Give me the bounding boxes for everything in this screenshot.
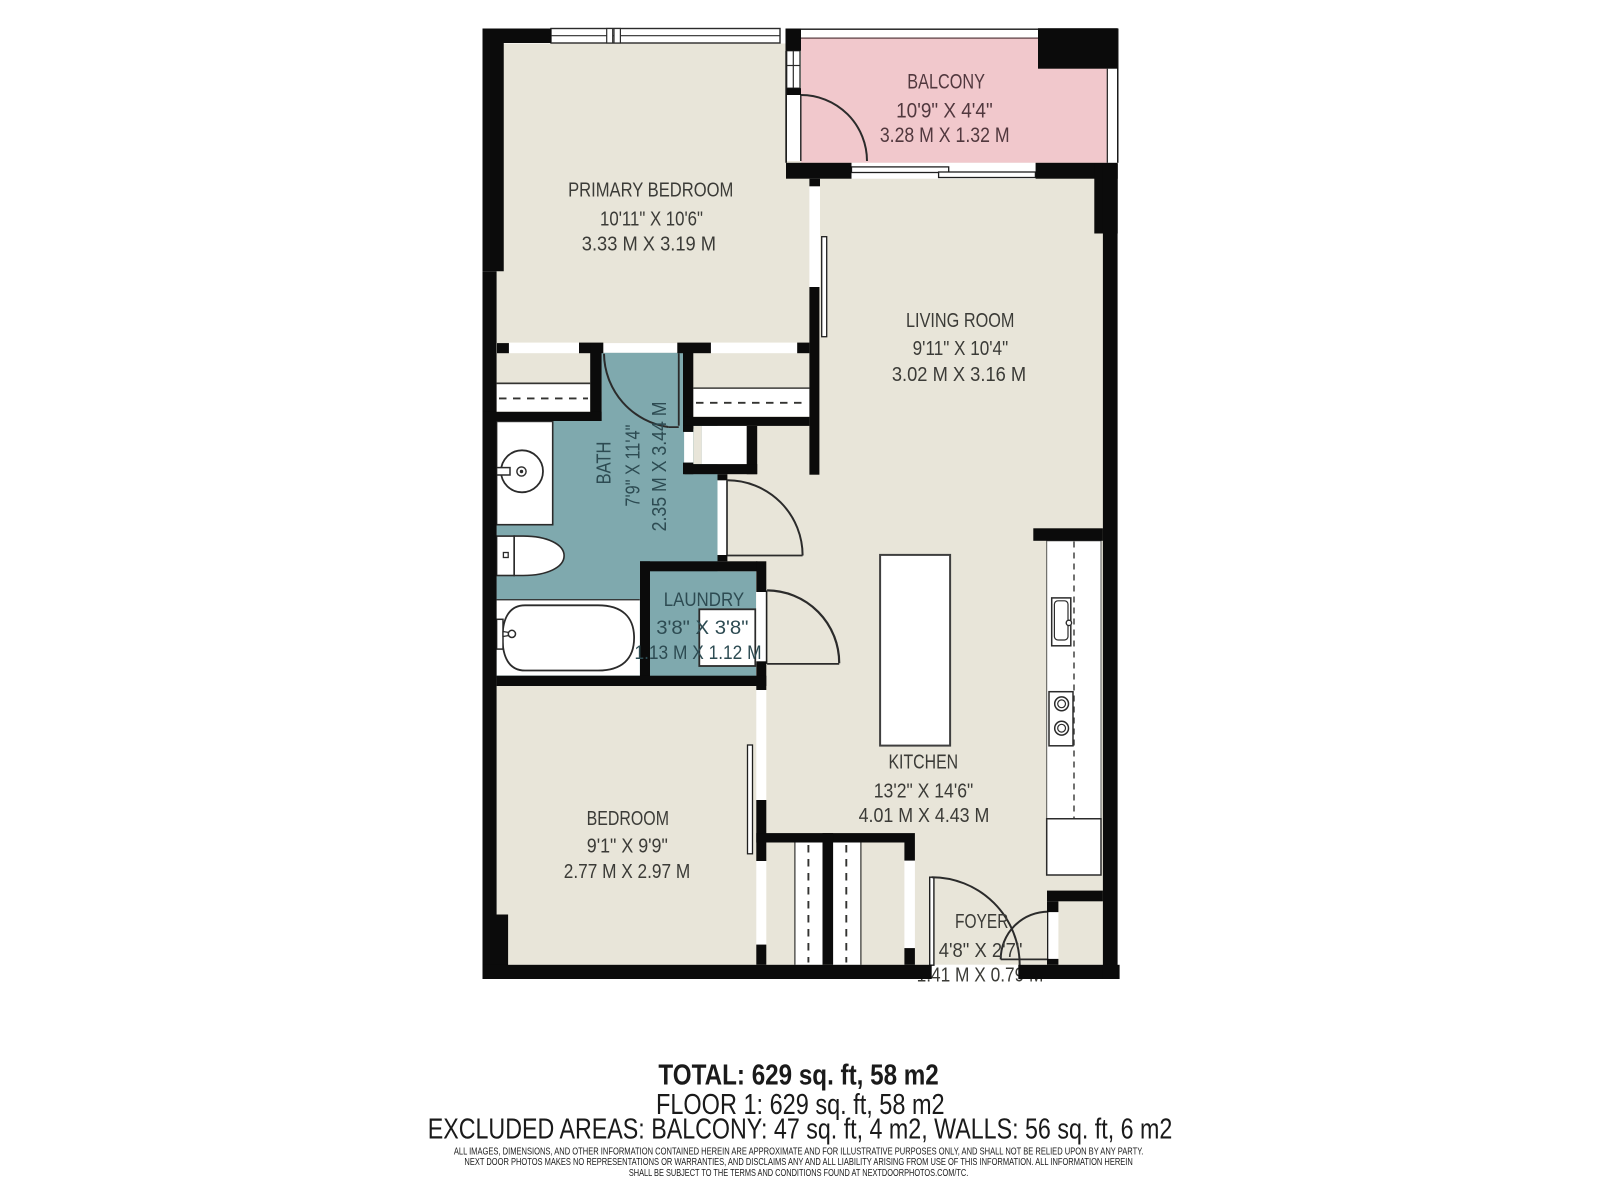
svg-text:BATH: BATH bbox=[592, 442, 615, 485]
svg-text:10'9" X 4'4": 10'9" X 4'4" bbox=[896, 99, 993, 122]
svg-text:FOYER: FOYER bbox=[955, 910, 1008, 932]
svg-text:13'2" X 14'6": 13'2" X 14'6" bbox=[874, 779, 973, 801]
svg-text:BEDROOM: BEDROOM bbox=[587, 807, 669, 829]
svg-text:10'11" X 10'6": 10'11" X 10'6" bbox=[600, 207, 703, 230]
svg-text:KITCHEN: KITCHEN bbox=[888, 751, 958, 773]
svg-text:2.35 M X 3.44 M: 2.35 M X 3.44 M bbox=[649, 401, 671, 531]
svg-text:LIVING ROOM: LIVING ROOM bbox=[906, 309, 1014, 331]
svg-text:4.01 M X 4.43 M: 4.01 M X 4.43 M bbox=[859, 805, 990, 827]
svg-text:TOTAL: 629 sq. ft, 58 m2: TOTAL: 629 sq. ft, 58 m2 bbox=[658, 1058, 938, 1090]
svg-text:2.77 M X 2.97 M: 2.77 M X 2.97 M bbox=[564, 860, 690, 882]
svg-text:3.33 M X 3.19 M: 3.33 M X 3.19 M bbox=[582, 234, 716, 256]
svg-text:NEXT DOOR PHOTOS MAKES NO REPR: NEXT DOOR PHOTOS MAKES NO REPRESENTATION… bbox=[464, 1156, 1132, 1167]
svg-text:SHALL BE SUBJECT TO THE TERMS: SHALL BE SUBJECT TO THE TERMS AND CONDIT… bbox=[629, 1167, 968, 1178]
svg-text:9'1" X 9'9": 9'1" X 9'9" bbox=[587, 836, 668, 858]
svg-text:4'8" X 2'7": 4'8" X 2'7" bbox=[939, 940, 1023, 962]
svg-text:3'8" X 3'8": 3'8" X 3'8" bbox=[656, 618, 748, 640]
svg-text:BALCONY: BALCONY bbox=[907, 70, 985, 94]
svg-text:EXCLUDED AREAS: BALCONY: 47 sq: EXCLUDED AREAS: BALCONY: 47 sq. ft, 4 m2… bbox=[428, 1112, 1173, 1145]
svg-text:3.02 M X 3.16 M: 3.02 M X 3.16 M bbox=[892, 364, 1026, 386]
svg-text:1.13 M X 1.12 M: 1.13 M X 1.12 M bbox=[634, 641, 761, 663]
svg-text:7'9" X 11'4": 7'9" X 11'4" bbox=[621, 425, 644, 507]
svg-text:9'11" X 10'4": 9'11" X 10'4" bbox=[913, 337, 1009, 360]
svg-text:3.28 M X 1.32 M: 3.28 M X 1.32 M bbox=[880, 124, 1010, 148]
svg-text:PRIMARY BEDROOM: PRIMARY BEDROOM bbox=[568, 178, 733, 201]
svg-text:LAUNDRY: LAUNDRY bbox=[664, 588, 744, 610]
